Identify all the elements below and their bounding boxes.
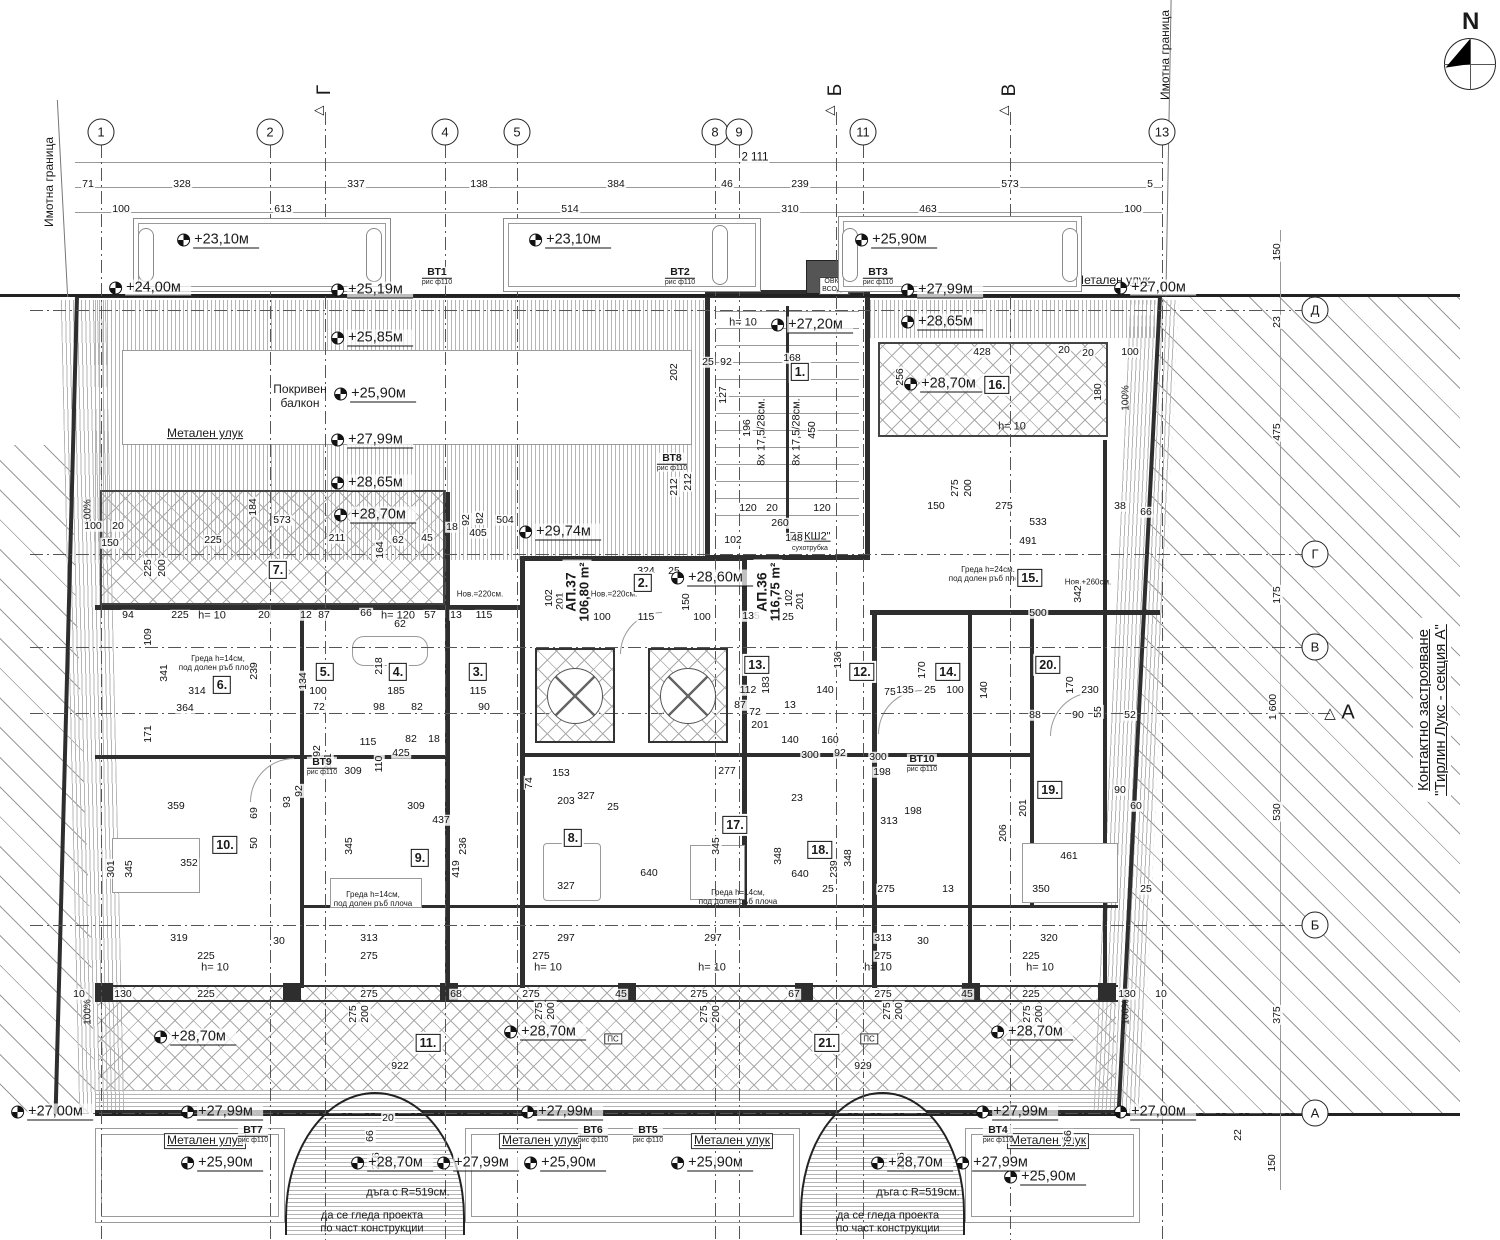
dim-number: 110 — [374, 755, 385, 774]
elevation-marker: +25,90м — [524, 1155, 606, 1172]
dim-number: 300 — [868, 752, 888, 763]
elevation-marker: +27,00м — [1114, 1104, 1196, 1121]
text-label: Нов.=220см. — [457, 589, 503, 598]
dim-label: 100 — [1123, 204, 1143, 215]
benchmark-icon — [991, 1026, 1004, 1039]
elevation-text: +28,70м — [887, 1155, 953, 1172]
dim-number: 148 — [784, 533, 804, 544]
dim-number: 275 — [348, 1004, 359, 1024]
benchmark-icon — [331, 477, 344, 490]
dim-number: 200 — [157, 558, 168, 578]
dim-number: 225 — [1021, 989, 1041, 1000]
dim-number: 314 — [187, 686, 207, 697]
dim-number: 25 — [923, 685, 937, 696]
dim-number: 225 — [196, 989, 216, 1000]
dim-label-right: 175 — [1272, 585, 1283, 605]
vent-pipe — [366, 228, 382, 282]
dim-number: 115 — [359, 737, 378, 748]
dim-number: 150 — [100, 538, 120, 549]
benchmark-icon — [334, 509, 347, 522]
elevation-marker: +28,70м — [904, 376, 986, 393]
vt-marker: ВТ6рис ф110 — [578, 1125, 608, 1144]
section-letter-top: Г — [314, 85, 336, 95]
room-number: 2. — [634, 574, 652, 592]
benchmark-icon — [901, 284, 914, 297]
benchmark-icon — [504, 1026, 517, 1039]
dim-number: 200 — [963, 478, 974, 498]
dim-number: 93 — [282, 795, 293, 809]
elevation-text: +28,65м — [347, 475, 413, 492]
dim-number: 200 — [711, 1004, 722, 1024]
dim-number: 82 — [410, 702, 424, 713]
dim-number: 160 — [820, 735, 840, 746]
dim-number: 100 — [945, 685, 965, 696]
dim-number: 313 — [873, 933, 893, 944]
elevation-marker: +29,74м — [519, 524, 601, 541]
benchmark-icon — [855, 234, 868, 247]
dim-label: 239 — [790, 179, 810, 190]
dim-number: 327 — [556, 881, 576, 892]
elevation-text: +25,85м — [347, 330, 413, 347]
text-label: 100% — [82, 999, 94, 1025]
elevation-marker: +28,65м — [331, 475, 413, 492]
dim-number: 200 — [546, 1001, 557, 1021]
dim-number: 309 — [343, 766, 363, 777]
dim-number: 345 — [344, 836, 355, 856]
dim-number: 13 — [941, 884, 955, 895]
text-label: Имотна граница — [43, 137, 57, 227]
dim-number: 88 — [1028, 710, 1042, 721]
elevation-text: +28,70м — [520, 1024, 586, 1041]
dim-number: 115 — [469, 686, 488, 697]
benchmark-icon — [901, 316, 914, 329]
elevation-text: +25,90м — [350, 386, 416, 403]
elevation-marker: +28,70м — [334, 507, 416, 524]
dim-number: 425 — [391, 748, 411, 759]
dim-number: 275 — [1022, 1004, 1033, 1024]
dim-number: 183 — [761, 675, 772, 695]
vt-id: ВТ7 — [238, 1125, 268, 1137]
text-label: 8х 17,5/28см. — [756, 398, 769, 466]
dim-number: 20 — [111, 521, 125, 532]
dim-number: 573 — [272, 515, 292, 526]
grid-bubble-top: 8 — [702, 119, 729, 146]
dim-number: 135 — [895, 685, 915, 696]
text-label: Греда h=14см, под долен ръб плоча — [334, 890, 412, 908]
dim-number: 504 — [495, 515, 515, 526]
text-label: Греда h=24см. под долен ръб плоча — [949, 565, 1027, 583]
dim-number: 153 — [551, 768, 571, 779]
elevation-marker: +25,90м — [181, 1155, 263, 1172]
dim-number: 10 — [1154, 989, 1168, 1000]
dim-number: 92 — [833, 748, 847, 759]
dim-label-right: 150 — [1267, 1153, 1278, 1173]
text-label: h= 10 — [534, 962, 562, 975]
room-number: 16. — [984, 376, 1009, 394]
dim-number: 275 — [534, 1001, 545, 1021]
elevation-marker: +28,70м — [991, 1024, 1073, 1041]
vt-id: ВТ9 — [307, 757, 337, 769]
dim-number: 348 — [773, 846, 784, 866]
dim-number: 198 — [903, 806, 923, 817]
dim-number: 171 — [143, 724, 154, 744]
dim-number: 20 — [1057, 345, 1071, 356]
dim-label-right: 23 — [1272, 315, 1283, 329]
text-label: h= 10 — [1026, 962, 1054, 975]
benchmark-icon — [529, 234, 542, 247]
dim-number: 313 — [879, 816, 899, 827]
vt-sub: рис ф110 — [238, 1136, 268, 1143]
dim-number: 20 — [1081, 348, 1095, 359]
room-number: 15. — [1017, 569, 1042, 587]
room-number: 13. — [744, 656, 769, 674]
dim-number: 225 — [170, 610, 190, 621]
dim-number: 134 — [298, 671, 309, 691]
elevation-marker: +27,99м — [521, 1104, 603, 1121]
benchmark-icon — [1004, 1171, 1017, 1184]
dim-number: 140 — [815, 685, 835, 696]
dim-number: 230 — [1080, 685, 1100, 696]
elevation-text: +25,19м — [347, 282, 413, 299]
dim-number: 98 — [372, 702, 386, 713]
grid-bubble-right: А — [1302, 1100, 1329, 1127]
elevation-text: +27,99м — [537, 1104, 603, 1121]
dim-number: 13 — [449, 610, 463, 621]
dim-label: 573 — [1000, 179, 1020, 190]
vent-pipe — [138, 228, 154, 282]
dim-number: 327 — [576, 791, 596, 802]
dim-number: 100 — [83, 521, 103, 532]
dim-number: 72 — [748, 707, 762, 718]
dim-number: 170 — [1065, 675, 1076, 695]
text-label: ПС — [860, 1033, 878, 1044]
dim-overall: 2 111 — [740, 152, 769, 164]
dim-number: 164 — [375, 540, 386, 560]
dim-number: 25 — [1139, 884, 1153, 895]
text-label: h= 10 — [864, 962, 892, 975]
room-number: 20. — [1035, 656, 1060, 674]
dim-number: 297 — [703, 933, 723, 944]
benchmark-icon — [1114, 282, 1127, 295]
vt-sub: рис ф110 — [863, 278, 893, 285]
text-label: 100% — [1120, 999, 1132, 1025]
dim-number: 66 — [1139, 507, 1153, 518]
dim-number: 342 — [1073, 584, 1084, 604]
benchmark-icon — [154, 1031, 167, 1044]
text-label: Метален улук — [691, 1133, 773, 1149]
dim-label-right: 1 600 — [1268, 693, 1279, 721]
text-label: да се гледа проекта по част конструкции — [836, 1209, 939, 1234]
dim-number: 461 — [1059, 851, 1079, 862]
dim-number: 202 — [669, 362, 680, 382]
vt-id: ВТ6 — [578, 1125, 608, 1137]
apartment-name: АП.37 — [564, 562, 578, 621]
dim-number: 185 — [386, 686, 406, 697]
vt-sub: рис ф110 — [422, 278, 452, 285]
elevation-marker: +28,70м — [871, 1155, 953, 1172]
text-label: h= 10 — [698, 962, 726, 975]
text-label: h= 10 — [729, 317, 757, 330]
elevation-text: +28,70м — [920, 376, 986, 393]
room-number: 9. — [411, 849, 429, 867]
dim-label: 337 — [346, 179, 366, 190]
vent-pipe — [1062, 228, 1078, 282]
text-label: ПС — [604, 1033, 622, 1044]
room-number: 6. — [213, 676, 231, 694]
dim-number: 57 — [423, 610, 437, 621]
dim-number: 90 — [1113, 785, 1127, 796]
grid-bubble-top: 13 — [1149, 119, 1176, 146]
elevation-text: +27,00м — [1130, 280, 1196, 297]
north-label: N — [1462, 8, 1479, 36]
benchmark-icon — [1114, 1106, 1127, 1119]
text-label: 100% — [1120, 385, 1132, 411]
dim-number: 82 — [404, 734, 418, 745]
dim-number: 640 — [639, 868, 659, 879]
dim-number: 450 — [807, 420, 818, 440]
elevation-marker: +25,90м — [671, 1155, 753, 1172]
elevation-text: +28,70м — [1007, 1024, 1073, 1041]
shaft-right — [648, 648, 728, 743]
dim-number: 275 — [689, 989, 709, 1000]
elevation-text: +29,74м — [535, 524, 601, 541]
dim-number: 115 — [637, 612, 656, 623]
room-number: 11. — [416, 1034, 441, 1052]
dim-label-right: 530 — [1272, 802, 1283, 822]
dim-number: 225 — [1021, 951, 1041, 962]
benchmark-icon — [331, 284, 344, 297]
dim-number: 18 — [427, 734, 441, 745]
dim-number: 275 — [699, 1004, 710, 1024]
elevation-marker: +24,00м — [109, 280, 191, 297]
dim-label: 384 — [606, 179, 626, 190]
dim-number: 100 — [592, 612, 612, 623]
elevation-text: +27,99м — [347, 432, 413, 449]
dim-number: 239 — [829, 859, 840, 879]
dim-number: 66 — [359, 608, 373, 619]
dim-number: 140 — [979, 680, 990, 700]
dim-number: 350 — [1031, 884, 1051, 895]
dim-label: 514 — [560, 204, 580, 215]
dim-label: 100 — [111, 204, 131, 215]
text-label: Имотна граница — [1159, 10, 1173, 100]
elevation-text: +27,99м — [197, 1104, 263, 1121]
dim-label-right: 475 — [1272, 422, 1283, 442]
dim-number: 30 — [916, 936, 930, 947]
elevation-marker: +28,70м — [154, 1029, 236, 1046]
dim-number: 120 — [738, 503, 758, 514]
text-label: h= 10 — [998, 421, 1026, 434]
dim-number: 184 — [248, 497, 259, 517]
elevation-text: +25,90м — [1020, 1169, 1086, 1186]
dim-number: 260 — [770, 518, 790, 529]
dim-number: 130 — [1117, 989, 1137, 1000]
elevation-text: +23,10м — [193, 232, 259, 249]
dim-number: 92 — [294, 784, 305, 798]
dim-number: 275 — [876, 884, 896, 895]
vt-id: ВТ10 — [907, 754, 937, 766]
elevation-marker: +27,99м — [901, 282, 983, 299]
dim-number: 25 — [821, 884, 835, 895]
dim-number: 87 — [317, 610, 331, 621]
grid-bubble-right: Б — [1302, 912, 1329, 939]
benchmark-icon — [524, 1157, 537, 1170]
dim-number: 130 — [113, 989, 133, 1000]
room-number: 21. — [814, 1034, 839, 1052]
elevation-text: +28,70м — [367, 1155, 433, 1172]
vt-id: ВТ1 — [422, 267, 452, 279]
text-label: Метален улук — [164, 1133, 246, 1149]
dim-number: 62 — [393, 619, 407, 630]
dim-number: 211 — [328, 533, 347, 544]
dim-label-right: 375 — [1272, 1005, 1283, 1025]
vt-marker: ВТ7рис ф110 — [238, 1125, 268, 1144]
benchmark-icon — [181, 1106, 194, 1119]
dim-number: 140 — [780, 735, 800, 746]
dim-number: 201 — [750, 720, 770, 731]
vt-marker: ВТ5рис ф110 — [633, 1125, 663, 1144]
section-triangle-icon: △ — [1324, 704, 1336, 722]
vt-id: ВТ3 — [863, 267, 893, 279]
elevation-text: +25,90м — [687, 1155, 753, 1172]
elevation-text: +24,00м — [125, 280, 191, 297]
dim-number: 313 — [359, 933, 379, 944]
dim-number: 68 — [449, 989, 463, 1000]
grid-bubble-top: 9 — [726, 119, 753, 146]
dim-number: 170 — [917, 660, 928, 680]
dim-number: 275 — [950, 478, 961, 498]
room-number: 19. — [1037, 781, 1062, 799]
vt-marker: ВТ3рис ф110 — [863, 267, 893, 286]
dim-number: 275 — [531, 951, 551, 962]
dim-number: 275 — [359, 951, 379, 962]
elevation-marker: +28,65м — [901, 314, 983, 331]
dim-number: 150 — [926, 501, 946, 512]
dim-number: 300 — [800, 750, 820, 761]
elevation-marker: +25,85м — [331, 330, 413, 347]
dim-number: 150 — [681, 592, 692, 612]
room-number: 8. — [564, 829, 582, 847]
dim-number: 45 — [420, 533, 434, 544]
room-number: 18. — [807, 841, 832, 859]
benchmark-icon — [521, 1106, 534, 1119]
dim-number: 102 — [784, 588, 795, 608]
dim-number: 218 — [374, 656, 385, 676]
benchmark-icon — [976, 1106, 989, 1119]
dim-number: 25 — [781, 612, 795, 623]
grid-bubble-top: 1 — [88, 119, 115, 146]
elevation-text: +23,10м — [545, 232, 611, 249]
dim-number: 320 — [1039, 933, 1059, 944]
text-label: Греда h=14см, под долен ръб плоча — [179, 654, 257, 672]
dim-number: 115 — [475, 610, 494, 621]
north-crosshair-v — [1470, 38, 1471, 90]
dim-number: 100 — [308, 686, 328, 697]
apartment-area: 106,80 m² — [578, 562, 591, 621]
dim-number: 364 — [175, 703, 195, 714]
dim-number: 10 — [72, 989, 86, 1000]
dim-number: 929 — [853, 1061, 873, 1072]
dim-label-right: 22 — [1233, 1128, 1244, 1142]
elevation-marker: +27,99м — [976, 1104, 1058, 1121]
dim-number: 66 — [365, 1129, 376, 1143]
section-triangle-icon: ◁ — [999, 102, 1009, 118]
dim-number: 341 — [159, 663, 170, 683]
section-triangle-icon: ◁ — [825, 102, 835, 118]
dim-number: 67 — [787, 989, 801, 1000]
text-label: h= 10 — [201, 962, 229, 975]
dim-number: 52 — [1123, 710, 1137, 721]
dim-number: 533 — [1028, 517, 1048, 528]
benchmark-icon — [437, 1157, 450, 1170]
apartment-label: АП.36116,75 m² — [754, 560, 783, 625]
dim-number: 66 — [1063, 1129, 1074, 1143]
dim-number: 20 — [257, 610, 271, 621]
dim-number: 275 — [882, 1001, 893, 1021]
dim-label: 71 — [81, 179, 95, 190]
text-label: да се гледа проекта по част конструкции — [320, 1209, 423, 1234]
vt-sub: рис ф110 — [983, 1136, 1013, 1143]
dim-number: 92 — [461, 513, 472, 527]
elevation-marker: +27,99м — [331, 432, 413, 449]
dim-number: 112 — [739, 685, 758, 696]
elevation-marker: +27,00м — [11, 1104, 93, 1121]
room-number: 14. — [935, 663, 960, 681]
dim-label: 138 — [469, 179, 489, 190]
elevation-marker: +27,99м — [437, 1155, 519, 1172]
dim-number: 922 — [390, 1061, 410, 1072]
benchmark-icon — [109, 282, 122, 295]
elevation-marker: +23,10м — [177, 232, 259, 249]
dim-label-right: 150 — [1272, 242, 1283, 262]
benchmark-icon — [334, 388, 347, 401]
dim-number: 212 — [669, 477, 680, 497]
dim-number: 100 — [1120, 347, 1140, 358]
dim-number: 72 — [312, 702, 326, 713]
dim-number: 201 — [795, 591, 806, 611]
section-letter-top: В — [999, 84, 1021, 97]
elevation-text: +28,70м — [350, 507, 416, 524]
section-letter-right: А — [1341, 702, 1354, 725]
section-triangle-icon: ◁ — [314, 102, 324, 118]
room-number: 7. — [269, 561, 287, 579]
elevation-marker: +25,90м — [855, 232, 937, 249]
benchmark-icon — [771, 319, 784, 332]
vt-marker: ВТ4рис ф110 — [983, 1125, 1013, 1144]
vent-pipe — [712, 225, 728, 285]
dim-number: 102 — [544, 588, 555, 608]
dim-number: 109 — [143, 627, 154, 647]
dim-number: 20 — [381, 1113, 395, 1124]
benchmark-icon — [331, 332, 344, 345]
benchmark-icon — [904, 378, 917, 391]
elevation-text: +27,99м — [992, 1104, 1058, 1121]
dim-number: 18 — [445, 522, 459, 533]
dim-number: 348 — [843, 848, 854, 868]
text-label: Метален улук — [499, 1133, 581, 1149]
dim-label: 463 — [918, 204, 938, 215]
dim-number: 225 — [196, 951, 216, 962]
room-number: 12. — [849, 663, 874, 681]
benchmark-icon — [871, 1157, 884, 1170]
dim-number: 352 — [179, 858, 199, 869]
grid-bubble-top: 4 — [432, 119, 459, 146]
dim-number: 239 — [249, 661, 260, 681]
elevation-text: +25,90м — [540, 1155, 606, 1172]
section-letter-top: Б — [825, 84, 847, 96]
dim-number: 437 — [431, 815, 451, 826]
dim-number: 20 — [765, 503, 779, 514]
